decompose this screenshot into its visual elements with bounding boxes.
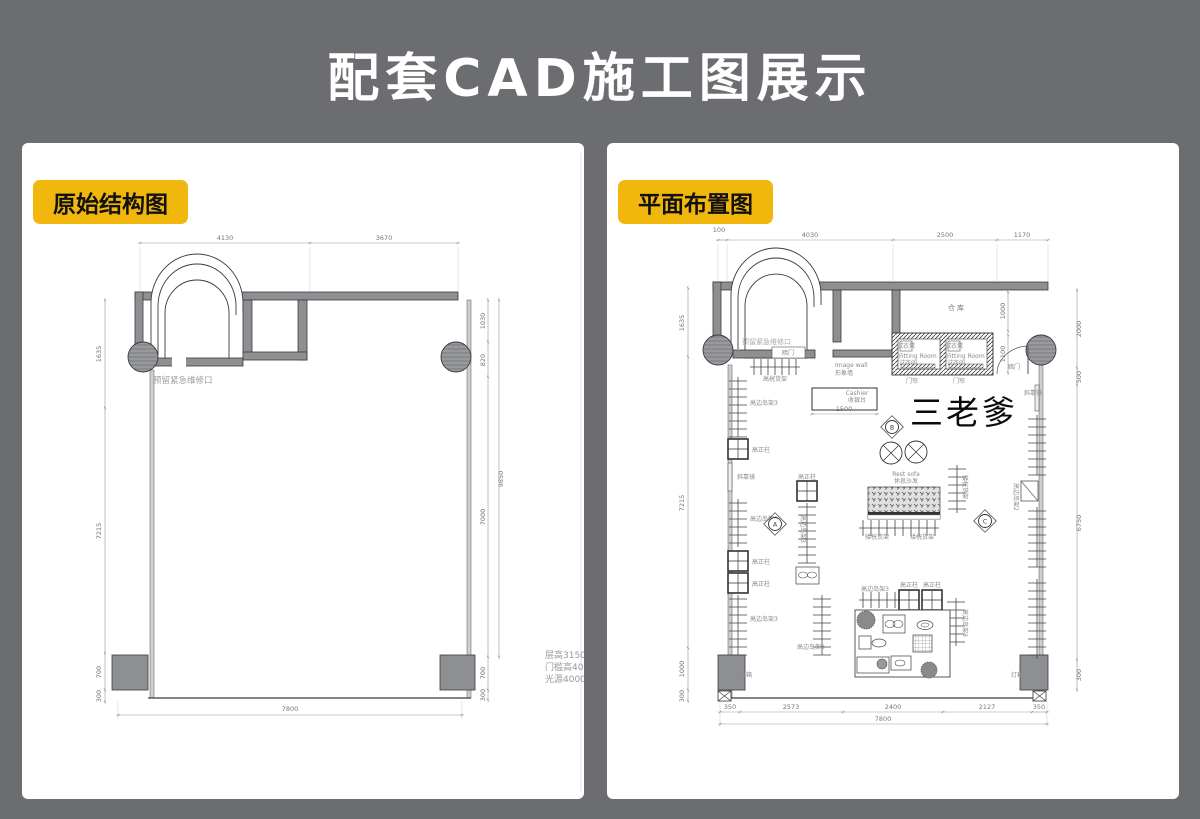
left-wall <box>728 365 732 698</box>
dim-right-2: 820 <box>479 354 487 366</box>
closet-wall-right <box>298 300 307 360</box>
round-tables <box>880 441 927 464</box>
dim-left-1: 1635 <box>95 346 103 363</box>
entry-rack-label: 高桄货架 <box>763 375 787 383</box>
middle-rack-column: 高正柱 高边岛架3 <box>796 473 819 584</box>
dim-bottom-total: 7800 <box>875 715 892 723</box>
marker-b: B <box>881 416 904 439</box>
fitting-stool-1-label: 试衣凳 <box>897 342 915 350</box>
closet-wall-left <box>833 290 841 342</box>
closet-wall-bottom <box>243 352 307 360</box>
lightbox-label-left: 灯箱 <box>740 671 752 679</box>
dim-bottom-4: 2127 <box>979 703 996 711</box>
rack-low-label-2: 矮桄货架 <box>910 533 934 541</box>
dim-top-1: 100 <box>713 226 725 234</box>
pillar-label-4: 高正柱 <box>798 473 816 481</box>
closet-wall-bottom <box>833 350 900 357</box>
dim-right-1: 1030 <box>479 313 487 330</box>
pillar-label-1: 高正柱 <box>752 446 770 454</box>
watermark: 三老爹 <box>910 393 1018 432</box>
round-column-left <box>703 335 733 365</box>
island3-label-5: 高边岛架3 <box>861 585 889 593</box>
dim-top-2: 3670 <box>376 234 393 242</box>
square-column-left <box>112 655 148 690</box>
lightbox-symbol-right <box>1033 691 1046 701</box>
floor-plan-drawing: 预留紧急维修口 暗门 仓库 1000 试衣凳 试衣凳 Fitting Room … <box>607 143 1179 799</box>
walls <box>112 254 475 698</box>
dim-top-1: 4130 <box>217 234 234 242</box>
marker-c: C <box>974 510 997 533</box>
left-wall <box>150 370 154 698</box>
dim-right-2: 500 <box>1075 371 1083 383</box>
floor-plan-badge: 平面布置图 <box>618 180 773 224</box>
square-column-right <box>440 655 475 690</box>
dim-left-2: 7215 <box>678 495 686 512</box>
dim-top-2: 4030 <box>802 231 819 239</box>
dim-right-3: 6750 <box>1075 515 1083 532</box>
dim-top-3: 2500 <box>937 231 954 239</box>
fitting-bench-2 <box>949 364 983 368</box>
plant-1 <box>857 611 875 629</box>
dim-left-3: 700 <box>95 666 103 678</box>
right-wall <box>1039 365 1043 698</box>
image-wall-cn: 形象墙 <box>835 369 853 377</box>
closet-wall-left <box>243 300 252 353</box>
arch-niche <box>165 280 229 364</box>
plan-notes: 层高3150. 门槛高400 光源4000K <box>545 649 584 685</box>
rack-low-label-v: 矮桄货架 <box>961 475 969 499</box>
sofa-en: Rest sofa <box>892 471 920 478</box>
leaning-mirror-left <box>728 463 732 491</box>
hidden-door-label: 暗门 <box>782 349 794 357</box>
maintenance-label: 预留紧急维修口 <box>742 337 791 346</box>
round-column-right <box>441 342 471 372</box>
warehouse-dim: 1000 <box>999 303 1007 320</box>
dim-left-2: 7215 <box>95 523 103 540</box>
island3-label-1: 高边岛架3 <box>750 399 778 407</box>
lightbox-label-right: 灯箱 <box>1011 671 1023 679</box>
fitting-bench-1 <box>901 364 935 368</box>
dim-bottom-3: 2400 <box>885 703 902 711</box>
fitting-room-2-en: Fitting Room <box>947 353 985 360</box>
dim-right-3: 7000 <box>479 509 487 526</box>
dim-left-3: 1000 <box>678 661 686 678</box>
dim-right-4: 300 <box>1075 669 1083 681</box>
island3-label-7: 高边岛架3 <box>961 609 969 637</box>
dim-right-4: 700 <box>479 667 487 679</box>
dim-bottom-2: 2573 <box>783 703 800 711</box>
floor-plan-panel: 平面布置图 <box>607 143 1179 799</box>
rack-low-label-1: 矮桄货架 <box>865 533 889 541</box>
fitting-stool-2-label: 试衣凳 <box>945 342 963 350</box>
maintenance-label: 预留紧急维修口 <box>153 375 213 386</box>
dim-top-4: 1170 <box>1014 231 1031 239</box>
dim-right-total: 9850 <box>497 471 505 488</box>
dim-bottom: 7800 <box>282 705 299 713</box>
square-column-right <box>1020 655 1048 690</box>
cashier-dim: 1500 <box>836 405 853 413</box>
cashier-cn: 收银台 <box>848 396 866 404</box>
original-structure-badge: 原始结构图 <box>33 180 188 224</box>
left-rack-column: 高边岛架3 高正柱 斜靠镜 高边岛架3 高正柱 高正柱 高边岛架3 <box>728 377 778 655</box>
page-title: 配套CAD施工图展示 <box>0 36 1200 111</box>
note-threshold-height: 门槛高400 <box>545 661 584 673</box>
hidden-door-2-label: 暗门 <box>1008 363 1020 371</box>
entry-rack <box>750 359 800 375</box>
original-structure-panel: 原始结构图 <box>22 143 584 799</box>
cashier-en: Cashier <box>846 390 869 397</box>
dim-right-1: 2000 <box>1075 321 1083 338</box>
pillar-label-3: 高正柱 <box>752 580 770 588</box>
island3-label-6: 高边岛架3 <box>797 643 825 651</box>
door-curtain-1: 门帘 <box>906 377 918 385</box>
svg-text:C: C <box>983 518 987 525</box>
round-column-left <box>128 342 158 372</box>
pillar-label-5: 高正柱 <box>900 581 918 589</box>
sofa-cn: 休息沙发 <box>894 477 918 485</box>
note-light-source: 光源4000K <box>545 673 584 685</box>
page-canvas: 配套CAD施工图展示 <box>0 0 1200 819</box>
plant-2 <box>921 662 937 678</box>
round-column-right <box>1026 335 1056 365</box>
lightbox-symbol-left <box>718 691 731 701</box>
original-structure-drawing: 4130 3670 1635 7215 700 300 1030 820 700… <box>22 143 584 799</box>
warehouse-label: 仓库 <box>948 303 966 312</box>
mirror-right-label: 斜靠镜 <box>1024 389 1042 397</box>
pillar-label-2: 高正柱 <box>752 558 770 566</box>
rest-sofa: Rest sofa 休息沙发 <box>868 471 940 519</box>
island2-label: 高边岛架2 <box>1012 483 1020 511</box>
display-platform: 高边岛架3 高正柱 高正柱 高边岛架3 高边岛架3 <box>797 581 969 678</box>
dim-left-4: 300 <box>678 690 686 702</box>
pillar-label-6: 高正柱 <box>923 581 941 589</box>
cashier-desk: Cashier 收银台 1500 <box>812 388 877 414</box>
grid-display <box>913 635 932 652</box>
dim-bottom-1: 350 <box>724 703 736 711</box>
svg-text:B: B <box>890 424 894 431</box>
plant-3 <box>877 659 887 669</box>
maintenance-opening <box>172 357 186 366</box>
dim-bottom-5: 350 <box>1033 703 1045 711</box>
mirror-left-label: 斜靠镜 <box>737 473 755 481</box>
fitting-rooms: 试衣凳 试衣凳 Fitting Room 试衣间 Fitting Room 试衣… <box>892 333 993 385</box>
note-ceiling-height: 层高3150. <box>545 649 584 661</box>
fitting-dim: 1100 <box>999 346 1007 363</box>
image-wall-en: Image wall <box>835 362 868 369</box>
island3-label-4: 高边岛架3 <box>799 515 807 543</box>
dim-right-5: 300 <box>479 689 487 701</box>
door-curtain-2: 门帘 <box>953 377 965 385</box>
dim-left-4: 300 <box>95 690 103 702</box>
leaning-mirror-right <box>1035 385 1039 411</box>
dim-left-1: 1635 <box>678 315 686 332</box>
fitting-room-1-en: Fitting Room <box>899 353 937 360</box>
island3-label-3: 高边岛架3 <box>750 615 778 623</box>
